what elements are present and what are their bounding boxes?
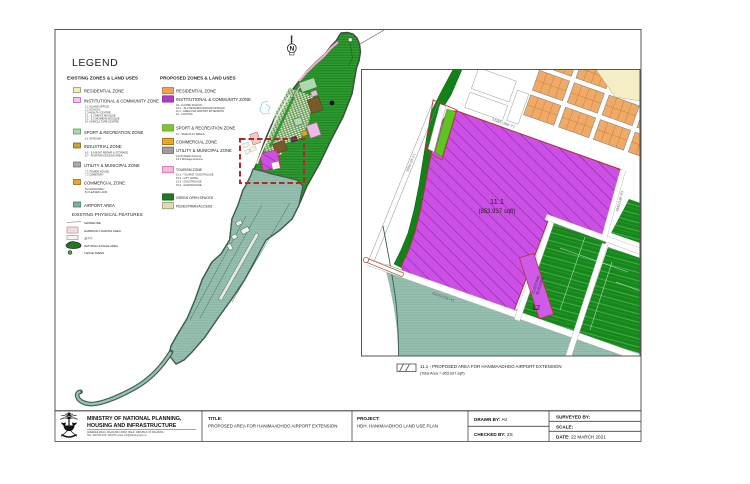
svg-text:PEDESTRIAN ACCESS: PEDESTRIAN ACCESS — [176, 205, 213, 209]
svg-text:COMMERCIAL ZONE: COMMERCIAL ZONE — [176, 139, 217, 144]
svg-text:EXISTING PHYSICAL FEATURES: EXISTING PHYSICAL FEATURES — [72, 212, 143, 217]
svg-text:RESIDENTIAL ZONE: RESIDENTIAL ZONE — [84, 89, 124, 94]
svg-text:PROPOSED ZONES & LAND USES: PROPOSED ZONES & LAND USES — [160, 76, 236, 81]
svg-text:HARBOUR LOADING AREA: HARBOUR LOADING AREA — [84, 229, 121, 233]
svg-text:HOUSING AND INFRASTRUCTURE: HOUSING AND INFRASTRUCTURE — [87, 423, 177, 429]
svg-text:PROPOSED AREA FOR HANIMAADHOO: PROPOSED AREA FOR HANIMAADHOO AIRPORT EX… — [208, 424, 337, 429]
svg-text:TEL: 4004700 FAX: 4004757: TEL: 4004700 FAX: 4004757 email: info@pl… — [87, 434, 147, 437]
svg-text:EXISTING ZONES & LAND USES: EXISTING ZONES & LAND USES — [67, 76, 138, 81]
svg-text:UTILITY & MUNICIPAL ZONE: UTILITY & MUNICIPAL ZONE — [84, 163, 140, 168]
svg-text:8.3 LEASED LAND: 8.3 LEASED LAND — [85, 190, 107, 194]
svg-text:TITLE:: TITLE: — [208, 416, 223, 421]
svg-text:LEGEND: LEGEND — [72, 57, 118, 69]
svg-text:LARGE TREES: LARGE TREES — [84, 251, 104, 255]
svg-text:SHORELINE: SHORELINE — [84, 221, 101, 225]
svg-text:7.2 CEMETERY: 7.2 CEMETERY — [85, 172, 104, 176]
svg-text:12: 12 — [532, 303, 540, 312]
svg-text:12 - CUSTOM: 12 - CUSTOM — [176, 112, 192, 116]
svg-text:UTILITY & MUNICIPAL ZONE: UTILITY & MUNICIPAL ZONE — [176, 148, 232, 153]
svg-text:SPORT & RECREATION ZONE: SPORT & RECREATION ZONE — [176, 126, 236, 131]
svg-text:4.1 AGRICULTURE CENTRE: 4.1 AGRICULTURE CENTRE — [85, 119, 119, 123]
svg-text:SURVEYED BY:: SURVEYED BY: — [556, 415, 591, 420]
svg-text:5.1 STADIUM: 5.1 STADIUM — [85, 137, 101, 141]
svg-text:15.4 - GUESTHOUSE: 15.4 - GUESTHOUSE — [176, 183, 202, 187]
svg-text:AMEENEE MAGU, MAAFANNU 20392,: AMEENEE MAGU, MAAFANNU 20392, MALE', REP… — [87, 431, 164, 434]
svg-text:AIRPORT AREA: AIRPORT AREA — [84, 203, 115, 208]
svg-text:INDUSTRIAL ZONE: INDUSTRIAL ZONE — [84, 144, 122, 149]
svg-text:GREEN OPEN SPACES: GREEN OPEN SPACES — [176, 196, 214, 200]
svg-text:PROJECT:: PROJECT: — [357, 416, 380, 421]
svg-text:(Total Area = 853,937 sqft): (Total Area = 853,937 sqft) — [420, 372, 465, 376]
svg-text:(853,937 sqft): (853,937 sqft) — [478, 209, 515, 215]
svg-text:HDH. HANIMAADHOO LAND USE PLAN: HDH. HANIMAADHOO LAND USE PLAN — [357, 424, 438, 429]
svg-text:15.3 - GUESTHOUSE: 15.3 - GUESTHOUSE — [176, 180, 202, 184]
svg-text:RESIDENTIAL ZONE: RESIDENTIAL ZONE — [176, 89, 216, 94]
svg-text:SCALE:: SCALE: — [556, 425, 574, 430]
svg-text:14.1 Dhiraagu Antenna: 14.1 Dhiraagu Antenna — [176, 157, 203, 161]
svg-text:DRAWN BY: AV: DRAWN BY: AV — [474, 417, 508, 422]
svg-text:15.1 - TOURIST GUESTHOUSE: 15.1 - TOURIST GUESTHOUSE — [176, 173, 214, 177]
svg-text:CHECKED BY: ZS: CHECKED BY: ZS — [474, 432, 513, 437]
svg-text:15.2 - CITY HOTEL: 15.2 - CITY HOTEL — [176, 176, 199, 180]
svg-text:DATE: 22 MARCH 2021: DATE: 22 MARCH 2021 — [556, 435, 606, 440]
svg-text:COMMERCIAL ZONE: COMMERCIAL ZONE — [84, 181, 125, 186]
svg-text:MINISTRY OF NATIONAL PLANNING,: MINISTRY OF NATIONAL PLANNING, — [87, 416, 182, 422]
svg-text:NATURAL/JUNGLE AREA: NATURAL/JUNGLE AREA — [84, 244, 118, 248]
svg-text:6.7 - FISH PROCESSING AREA: 6.7 - FISH PROCESSING AREA — [85, 153, 123, 157]
svg-text:11.1: 11.1 — [490, 197, 504, 206]
svg-text:SPORT & RECREATION ZONE: SPORT & RECREATION ZONE — [84, 130, 144, 135]
svg-text:N: N — [289, 46, 294, 53]
svg-text:JETTY: JETTY — [84, 237, 93, 241]
svg-text:INSTITUTIONAL & COMMUNITY ZONE: INSTITUTIONAL & COMMUNITY ZONE — [84, 98, 159, 103]
svg-text:13 - SAFE PLAY AREAS: 13 - SAFE PLAY AREAS — [176, 132, 205, 136]
svg-text:TOURISM ZONE: TOURISM ZONE — [176, 168, 203, 172]
svg-text:11.1 - PROPOSED AREA FOR HANIM: 11.1 - PROPOSED AREA FOR HANIMAADHOO AIR… — [420, 364, 562, 369]
svg-text:INSTITUTIONAL & COMMUNITY ZONE: INSTITUTIONAL & COMMUNITY ZONE — [176, 97, 251, 102]
